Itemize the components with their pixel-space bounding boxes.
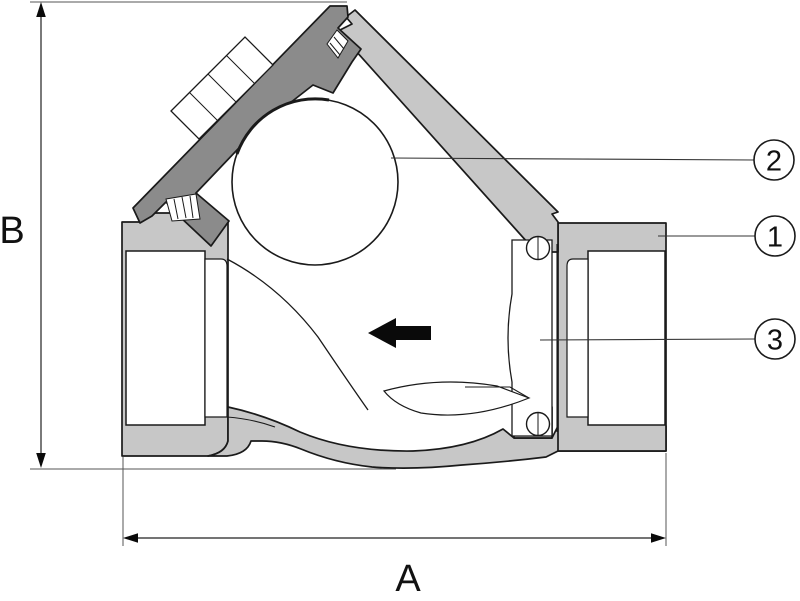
dimension-b-arrow-down-icon [36, 453, 46, 468]
callout-number-1: 1 [767, 222, 783, 254]
right-port-bore [588, 251, 665, 425]
dimension-a-label: A [395, 558, 421, 600]
dimension-b: B [0, 2, 46, 468]
seat-insert [508, 240, 552, 436]
dimension-b-label: B [0, 210, 25, 252]
chamber-wall-curve [227, 259, 368, 410]
leader-line-2 [391, 158, 754, 160]
callout-number-2: 2 [766, 146, 782, 178]
flow-arrow-icon [368, 318, 431, 348]
valve-diagram: B A [0, 0, 800, 601]
dimension-a-arrow-right-icon [651, 533, 666, 543]
dimension-a-arrow-left-icon [123, 533, 138, 543]
callout-number-3: 3 [767, 325, 783, 357]
diagram-canvas: B A [0, 0, 800, 601]
right-port-throat [567, 259, 588, 417]
thread-zone-lower [166, 194, 200, 221]
left-port-bore [126, 251, 205, 425]
left-port-throat [205, 259, 227, 417]
dimension-a: A [123, 533, 666, 600]
dimension-b-arrow-up-icon [36, 2, 46, 17]
ball [232, 99, 398, 265]
